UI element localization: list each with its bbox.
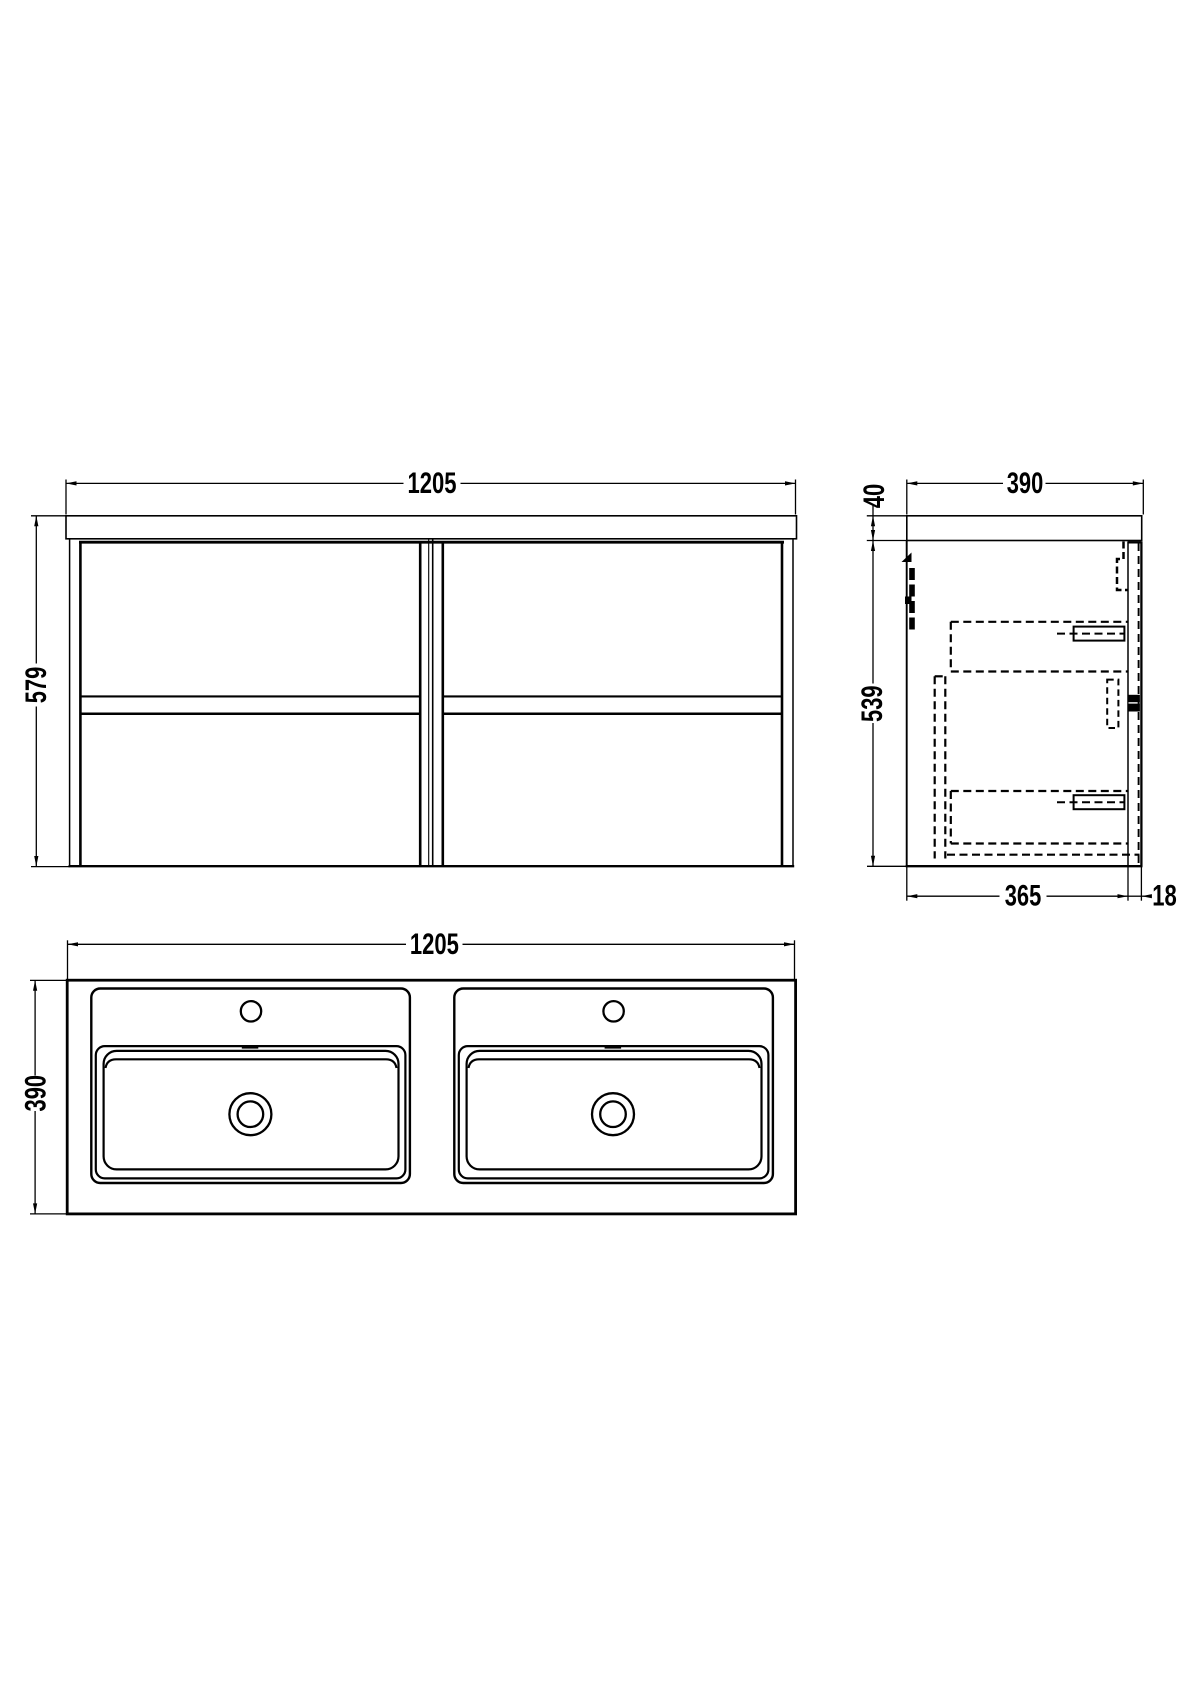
svg-text:18: 18: [1152, 880, 1177, 913]
svg-text:1205: 1205: [408, 467, 457, 500]
svg-text:390: 390: [20, 1075, 53, 1112]
svg-text:579: 579: [20, 667, 53, 704]
svg-text:365: 365: [1005, 880, 1042, 913]
svg-text:539: 539: [856, 685, 889, 722]
svg-text:40: 40: [858, 484, 891, 509]
svg-text:1205: 1205: [410, 928, 459, 961]
svg-text:390: 390: [1007, 467, 1044, 500]
